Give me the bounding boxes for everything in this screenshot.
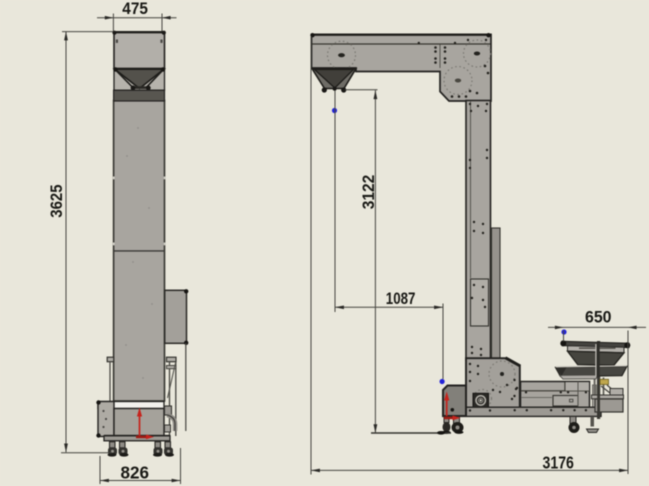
svg-text:1087: 1087: [386, 289, 416, 308]
svg-text:3176: 3176: [543, 452, 575, 472]
svg-text:475: 475: [122, 0, 148, 18]
svg-text:3625: 3625: [47, 185, 66, 218]
svg-text:826: 826: [121, 462, 150, 482]
svg-text:650: 650: [585, 308, 612, 327]
